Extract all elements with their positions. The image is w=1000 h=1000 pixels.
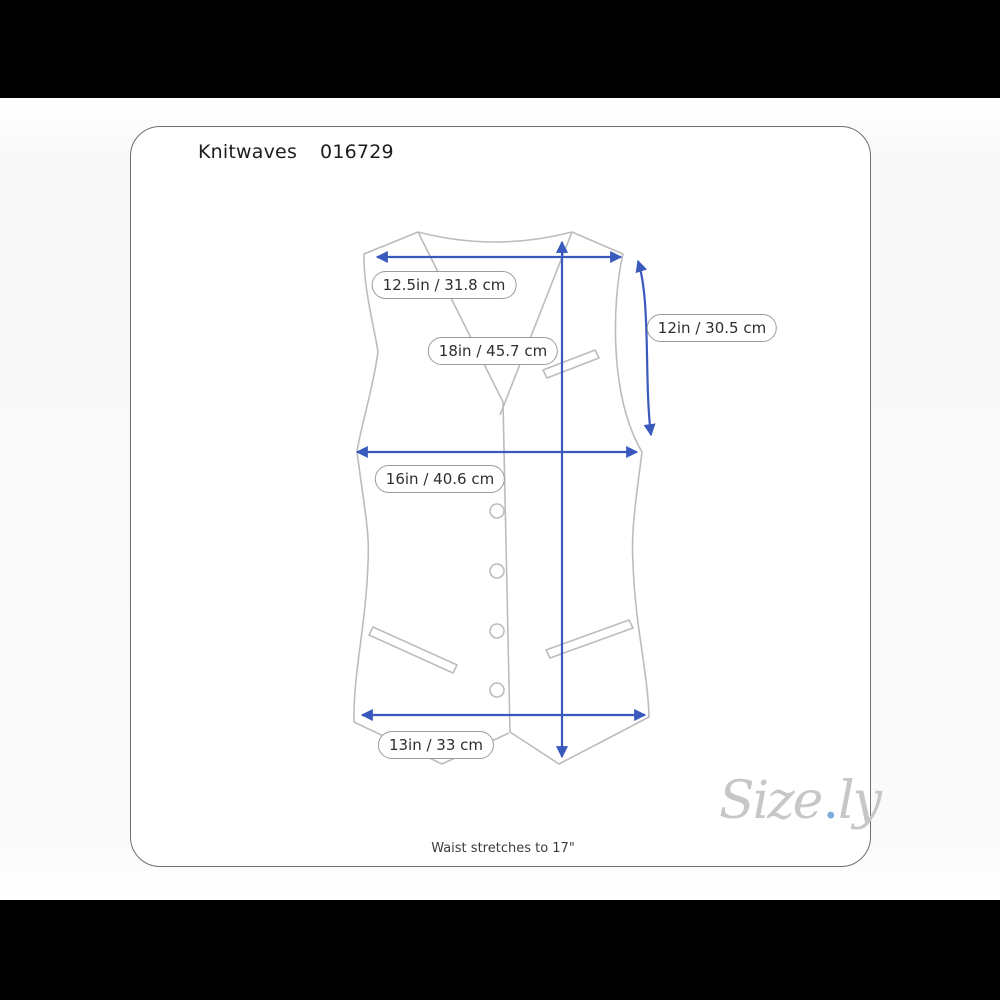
vest-left-panel-edge [354,232,509,764]
page: Knitwaves016729 [0,0,1000,1000]
sizely-logo-dot: . [822,771,837,831]
measurement-arrows [357,242,651,757]
button-4 [490,683,504,697]
stretch-note: Waist stretches to 17" [431,841,575,856]
measurement-label-armhole: 12in / 30.5 cm [647,314,777,342]
measurement-label-waist: 13in / 33 cm [378,731,494,759]
vest-right-panel-edge [510,232,649,764]
letterbox-bottom [0,900,1000,1000]
armhole-curve-arrow [638,261,651,435]
measurement-label-chest: 16in / 40.6 cm [375,465,505,493]
measurement-label-length: 18in / 45.7 cm [428,337,558,365]
measurement-label-shoulder: 12.5in / 31.8 cm [372,271,517,299]
vest-measurement-diagram [131,127,872,868]
button-3 [490,624,504,638]
button-2 [490,564,504,578]
button-1 [490,504,504,518]
sizely-logo: Size.ly [719,775,880,827]
vest-back-neck [418,232,572,242]
size-chart-card: Knitwaves016729 [130,126,871,867]
lower-left-welt-pocket [369,627,457,673]
vest-outline [354,232,649,764]
lower-right-welt-pocket [546,620,633,658]
sizely-logo-text2: ly [838,771,880,831]
letterbox-top [0,0,1000,98]
sizely-logo-text: Size [719,771,821,831]
